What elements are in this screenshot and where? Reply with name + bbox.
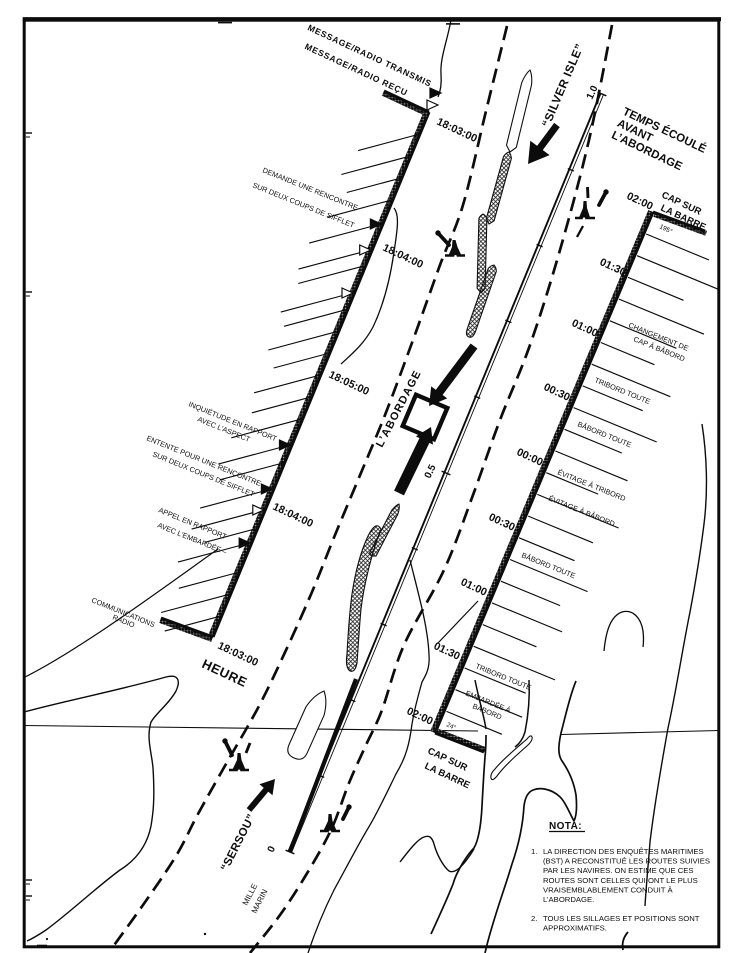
- svg-text:L’ABORDAGE.: L’ABORDAGE.: [543, 895, 594, 904]
- svg-text:PAR LES NAVIRES. ON ESTIME QU: PAR LES NAVIRES. ON ESTIME QUE CES: [543, 866, 694, 875]
- svg-text:APPROXIMATIFS.: APPROXIMATIFS.: [543, 924, 607, 933]
- svg-text:LA DIRECTION DES ENQUÊTES MARI: LA DIRECTION DES ENQUÊTES MARITIMES: [543, 847, 704, 856]
- svg-text:VRAISEMBLABLEMENT CONDUIT À: VRAISEMBLABLEMENT CONDUIT À: [543, 885, 673, 894]
- svg-text:ROUTES SONT CELLES QUI ONT LE: ROUTES SONT CELLES QUI ONT LE PLUS: [543, 876, 698, 885]
- svg-text:1.: 1.: [531, 847, 537, 856]
- svg-text:2.: 2.: [531, 914, 537, 923]
- svg-text:TOUS LES SILLAGES ET POSITIONS: TOUS LES SILLAGES ET POSITIONS SONT: [543, 914, 700, 923]
- svg-text:NOTA:: NOTA:: [549, 821, 582, 832]
- svg-text:(BST) A RECONSTITUÉ LES ROUTES: (BST) A RECONSTITUÉ LES ROUTES SUIVIES: [543, 857, 710, 866]
